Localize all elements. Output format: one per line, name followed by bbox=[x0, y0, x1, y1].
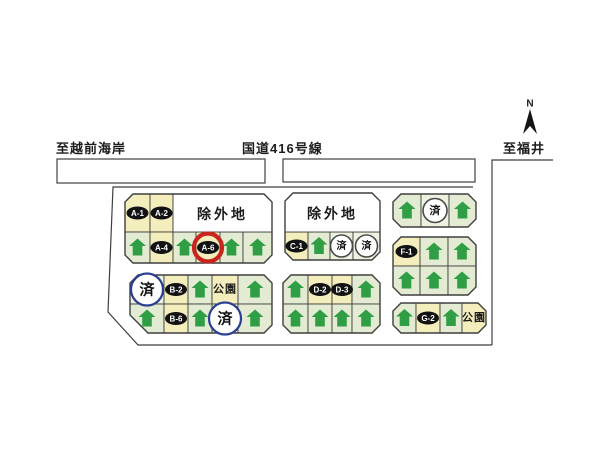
lot-number-label: B-2 bbox=[170, 286, 183, 295]
lot-number-label: D-3 bbox=[336, 286, 349, 295]
excluded-land-label: 除外地 bbox=[307, 206, 358, 222]
road-strip bbox=[283, 159, 475, 182]
road-strip-right bbox=[492, 160, 553, 345]
lot-number-label: A-6 bbox=[202, 244, 215, 253]
road-label-to-echizen-coast: 至越前海岸 bbox=[56, 138, 126, 157]
lot-number-label: A-4 bbox=[155, 244, 168, 253]
block-A bbox=[125, 194, 272, 263]
excluded-land-label: 除外地 bbox=[197, 206, 248, 222]
compass-arrow-icon bbox=[523, 109, 537, 134]
lot-number-label: F-1 bbox=[401, 248, 414, 257]
lot-number-label: D-2 bbox=[314, 286, 327, 295]
compass-n-label: N bbox=[526, 99, 533, 110]
sold-label: 済 bbox=[430, 203, 442, 217]
sold-label: 済 bbox=[337, 239, 348, 252]
lot-number-label: A-1 bbox=[131, 209, 144, 218]
road-label-to-fukui: 至福井 bbox=[503, 138, 545, 157]
lot-number-label: G-2 bbox=[421, 314, 435, 323]
subdivision-map-page: N除外地A-1A-2A-4A-6済B-2公園B-6済除外地C-1済済D-2D-3… bbox=[0, 0, 600, 450]
sold-label: 済 bbox=[362, 239, 373, 252]
sold-label: 済 bbox=[139, 281, 155, 299]
sold-label: 済 bbox=[217, 310, 233, 328]
lot-number-label: B-6 bbox=[170, 315, 183, 324]
road-strip bbox=[57, 159, 265, 183]
park-label: 公園 bbox=[213, 283, 237, 296]
road-label-route-416: 国道416号線 bbox=[242, 138, 323, 157]
lot-number-label: A-2 bbox=[155, 209, 168, 218]
park-label: 公園 bbox=[462, 311, 486, 324]
subdivision-map: N除外地A-1A-2A-4A-6済B-2公園B-6済除外地C-1済済D-2D-3… bbox=[0, 0, 600, 450]
lot-number-label: C-1 bbox=[290, 242, 303, 251]
